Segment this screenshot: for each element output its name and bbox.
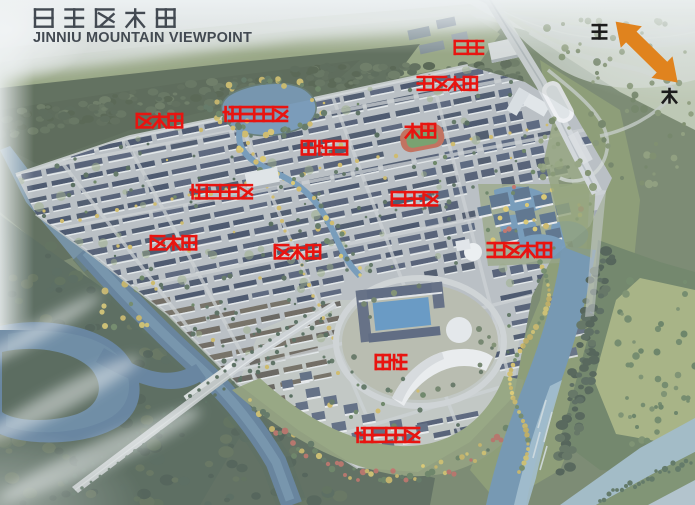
svg-text:JINNIU MOUNTAIN VIEWPOINT: JINNIU MOUNTAIN VIEWPOINT <box>33 30 252 46</box>
